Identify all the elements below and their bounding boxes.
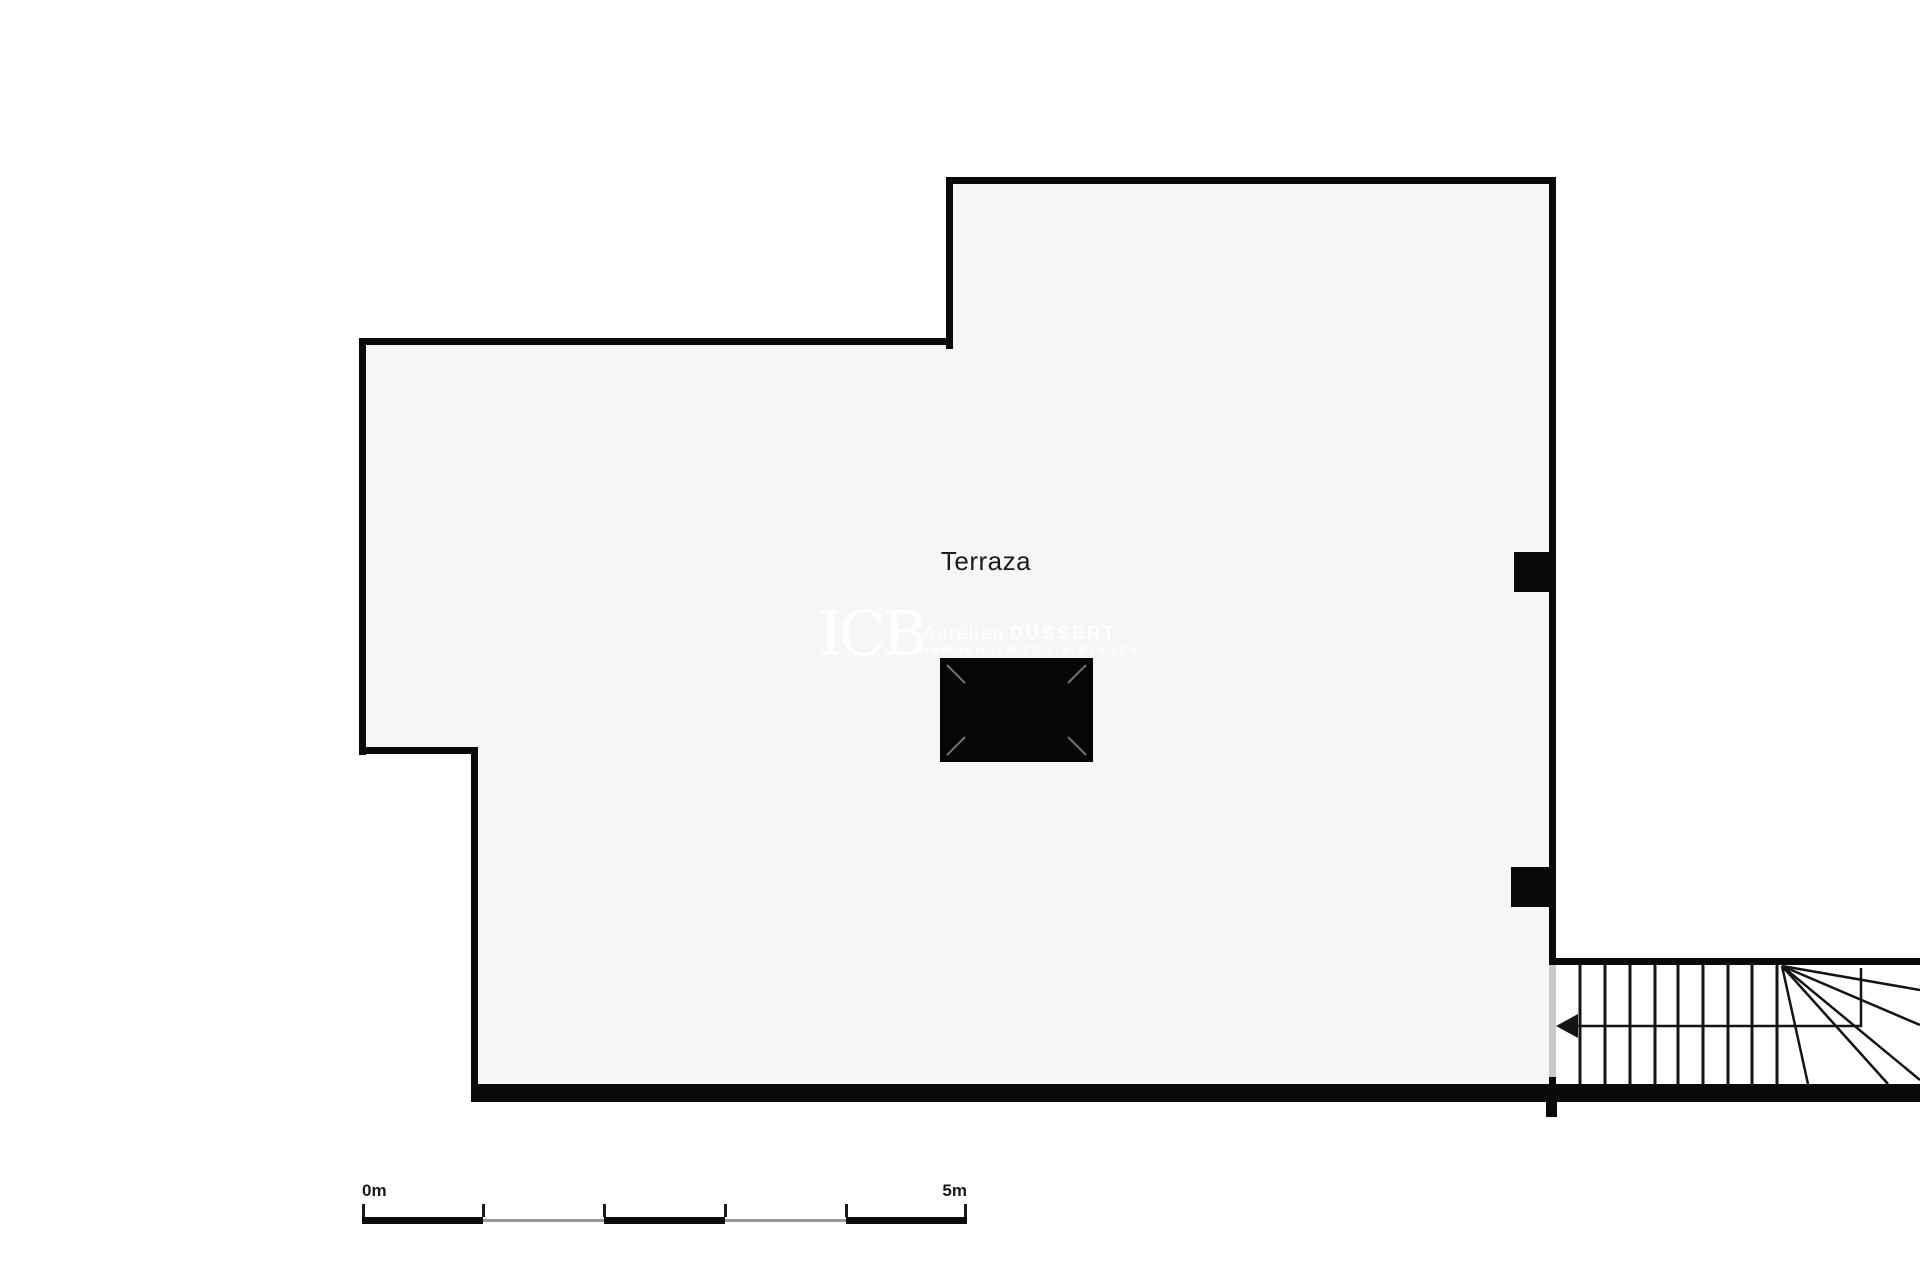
wall-notch-vertical <box>471 747 478 1102</box>
scale-tick <box>845 1204 848 1217</box>
terrace-interior <box>366 184 1549 1084</box>
wall-right-lower <box>1549 1077 1556 1102</box>
scale-tick <box>964 1204 967 1217</box>
walk-arrow-icon <box>1556 1014 1578 1038</box>
scale-bar-segment-gray <box>725 1219 846 1222</box>
scale-label-start: 0m <box>362 1182 387 1199</box>
wall-notch-horizontal <box>359 747 478 754</box>
scale-bar-segment-black <box>362 1217 483 1224</box>
scale-bar: 0m 5m <box>362 1182 967 1227</box>
stair-risers <box>1580 965 1777 1084</box>
wall-bottom <box>471 1084 1920 1102</box>
scale-label-end: 5m <box>942 1182 967 1199</box>
scale-tick <box>724 1204 727 1217</box>
table-rect <box>940 658 1093 762</box>
scale-bar-segment-black <box>604 1217 725 1224</box>
scale-bar-segment-gray <box>483 1219 604 1222</box>
floorplan-canvas: Terraza ICB Aurélien DUSSERT IMMOBILIER … <box>0 0 1920 1280</box>
wall-right <box>1549 177 1556 965</box>
scale-tick <box>482 1204 485 1217</box>
room-label: Terraza <box>941 548 1031 575</box>
wall-stub <box>1546 1102 1557 1117</box>
staircase <box>1549 958 1920 1084</box>
wall-left <box>359 338 366 755</box>
scale-bar-segment-black <box>846 1217 967 1224</box>
scale-tick <box>362 1204 365 1217</box>
floorplan-drawing <box>0 0 1920 1280</box>
wall-top-left-section <box>359 338 953 345</box>
door-opening <box>1549 965 1556 1077</box>
pillar-upper <box>1514 552 1549 592</box>
wall-left-upper <box>946 177 953 349</box>
wall-top-upper <box>946 177 1556 184</box>
pillar-lower <box>1511 867 1549 907</box>
stair-top-edge <box>1549 958 1920 965</box>
scale-tick <box>603 1204 606 1217</box>
